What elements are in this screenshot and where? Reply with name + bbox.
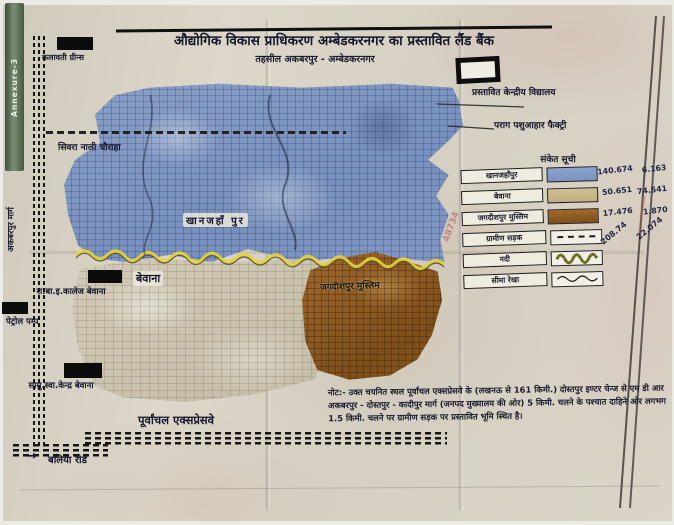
khanjahanpur-color-swatch [546, 166, 597, 182]
legend-label: सीमा रेखा [463, 272, 547, 289]
rural-road-symbol [550, 229, 602, 245]
legend-value: 1.870 [633, 204, 668, 217]
bewana-color-swatch [547, 187, 598, 203]
page-title: औद्योगिक विकास प्राधिकरण अम्बेडकरनगर का … [118, 31, 550, 49]
scanned-map-page: Annexure-3 औद्योगिक विकास प्राधिकरण अम्ब… [0, 0, 674, 525]
khanjahanpur-region [55, 80, 465, 270]
map-note: नोट:- उक्त चयनित स्थल पूर्वांचल एक्सप्रे… [328, 382, 669, 426]
health-centre-mark [64, 363, 102, 378]
akbarpur-marg-label: अकबरपुर मार्ग [6, 185, 17, 275]
legend-value: 140.674 [597, 163, 633, 176]
proposed-kendriya-vidyalaya-label: प्रस्तावित केन्द्रीय विद्यालय [472, 85, 556, 98]
legend-table: खानजहाँपुर 140.674 6.163 बेवाना 50.651 7… [460, 161, 669, 292]
dashed-road-line-icon [557, 235, 595, 238]
jagdishpur-color-swatch [548, 208, 599, 224]
petrol-pump-label: पेट्रोल पम्प [6, 316, 38, 327]
parag-factory-label: पराग पशुआहार फैक्ट्री [494, 118, 566, 131]
annexure-label: Annexure-3 [10, 58, 19, 117]
legend-label: बेवाना [461, 188, 544, 205]
kalawati-greens-label: कलावती ग्रीन्स [42, 52, 84, 63]
arrow-icon: → [26, 449, 37, 464]
expressway-line [85, 432, 447, 445]
petrol-pump-mark [2, 302, 28, 314]
legend-label: ग्रामीण सड़क [462, 230, 546, 247]
siwara-nali-chauraha-label: सिवरा नाली चौराहा [58, 140, 121, 153]
health-centre-bewana-label: सामु.स्वा.केन्द्र बेवाना [18, 380, 104, 391]
college-bewana-label: रा.बा.इ.कालेज बेवाना [36, 286, 106, 297]
khanjahanpur-label: खानजहाँ पुर [183, 213, 248, 227]
legend-value: 74.541 [632, 183, 667, 196]
boundary-wave-icon [555, 272, 599, 285]
annexure-strip: Annexure-3 [5, 3, 24, 171]
bewana-label: बेवाना [133, 271, 163, 286]
ballia-road-label: बलिया रोड [48, 452, 87, 466]
college-mark [88, 270, 122, 283]
siwara-road-dashed-line [46, 131, 346, 134]
legend-value: 50.651 [598, 184, 633, 197]
river-wave-icon [555, 250, 599, 265]
legend-value: 17.476 [598, 205, 633, 218]
legend-label: खानजहाँपुर [460, 167, 542, 184]
legend-value: 6.163 [632, 162, 667, 175]
legend-label: नदी [463, 251, 547, 268]
page-subtitle: तहसील अकबरपुर - अम्बेडकरनगर [150, 52, 480, 65]
kendriya-vidyalaya-site-box [455, 56, 500, 84]
boundary-symbol [551, 271, 603, 287]
jagdishpur-muslim-label: जगदीशपुर मुस्लिम [320, 278, 380, 293]
kalawati-greens-mark [57, 37, 93, 50]
purvanchal-expressway-label: पूर्वांचल एक्सप्रेसवे [138, 413, 214, 428]
legend-row-boundary: सीमा रेखा [463, 266, 669, 291]
river-symbol [551, 250, 603, 266]
legend-label: जगदीशपुर मुस्लिम [462, 209, 545, 226]
